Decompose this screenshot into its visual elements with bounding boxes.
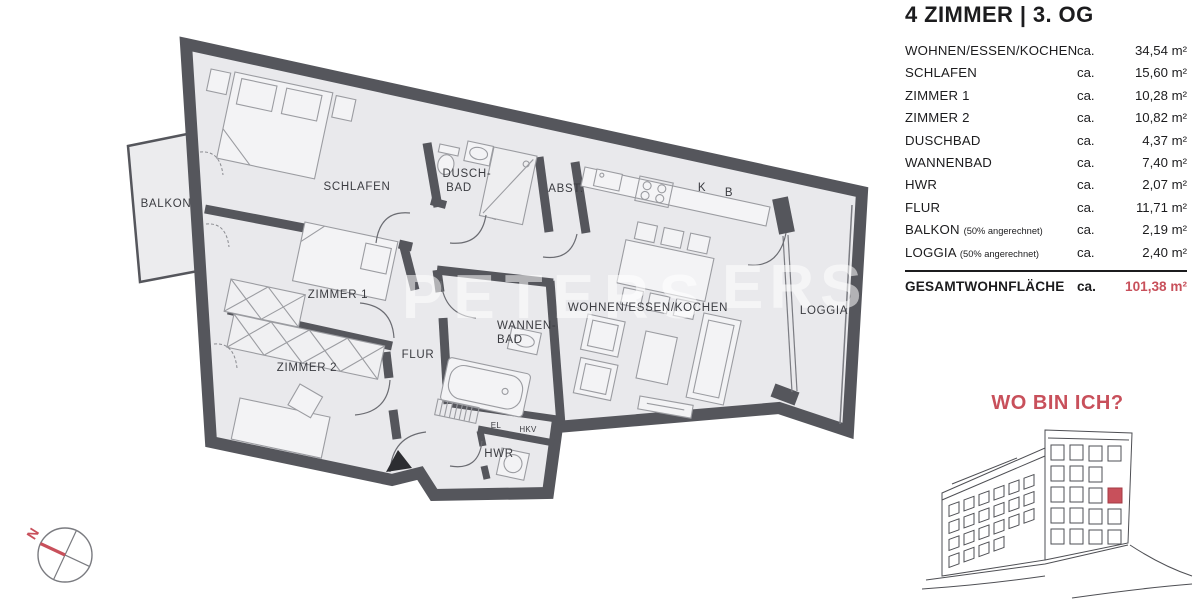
- label-el: EL: [491, 421, 502, 430]
- table-row: FLUR ca.11,71 m²: [905, 200, 1187, 222]
- area-table: WOHNEN/ESSEN/KOCHEN ca.34,54 m² SCHLAFEN…: [905, 43, 1187, 267]
- info-panel: 4 ZIMMER | 3. OG WOHNEN/ESSEN/KOCHEN ca.…: [905, 0, 1187, 294]
- label-balkon: BALKON: [141, 198, 192, 210]
- label-loggia: LOGGIA: [800, 305, 848, 317]
- label-zimmer2: ZIMMER 2: [277, 362, 338, 374]
- table-row: WANNENBAD ca.7,40 m²: [905, 155, 1187, 177]
- page-title: 4 ZIMMER | 3. OG: [905, 0, 1187, 28]
- label-k: K: [698, 182, 706, 194]
- north-pointer: [41, 544, 66, 555]
- table-row: SCHLAFEN ca.15,60 m²: [905, 65, 1187, 87]
- north-label: N: [25, 525, 42, 542]
- label-flur: FLUR: [402, 349, 435, 361]
- watermark: PETERS ERS: [402, 253, 867, 332]
- label-duschbad-2: BAD: [446, 182, 472, 194]
- label-duschbad-1: DUSCH-: [443, 168, 492, 180]
- label-wannenbad-1: WANNEN-: [497, 320, 556, 332]
- label-zimmer1: ZIMMER 1: [308, 289, 369, 301]
- table-row: ZIMMER 1 ca.10,28 m²: [905, 88, 1187, 110]
- table-row: ZIMMER 2 ca.10,82 m²: [905, 110, 1187, 132]
- label-hwr: HWR: [484, 448, 514, 460]
- label-abst: ABST.: [548, 183, 583, 195]
- north-compass: N: [25, 515, 105, 595]
- label-schlafen: SCHLAFEN: [324, 181, 391, 193]
- table-row: BALKON (50% angerechnet)ca.2,19 m²: [905, 222, 1187, 244]
- table-row: LOGGIA (50% angerechnet)ca.2,40 m²: [905, 245, 1187, 267]
- label-b: B: [725, 187, 733, 199]
- floorplan-page: PETERS ERS BALKON SCHLAFEN DUSCH- BAD AB…: [0, 0, 1200, 600]
- table-row: WOHNEN/ESSEN/KOCHEN ca.34,54 m²: [905, 43, 1187, 65]
- facade-windows: [949, 475, 1034, 568]
- label-wannenbad-2: BAD: [497, 334, 523, 346]
- locator-heading: WO BIN ICH?: [930, 392, 1185, 415]
- building-sketch: [922, 418, 1194, 600]
- total-row: GESAMTWOHNFLÄCHE ca. 101,38 m²: [905, 270, 1187, 294]
- table-row: HWR ca.2,07 m²: [905, 177, 1187, 199]
- label-wohnen: WOHNEN/ESSEN/KOCHEN: [568, 302, 728, 314]
- apartment-location-marker: [1108, 488, 1122, 503]
- table-row: DUSCHBAD ca.4,37 m²: [905, 133, 1187, 155]
- label-hkv: HKV: [519, 425, 537, 434]
